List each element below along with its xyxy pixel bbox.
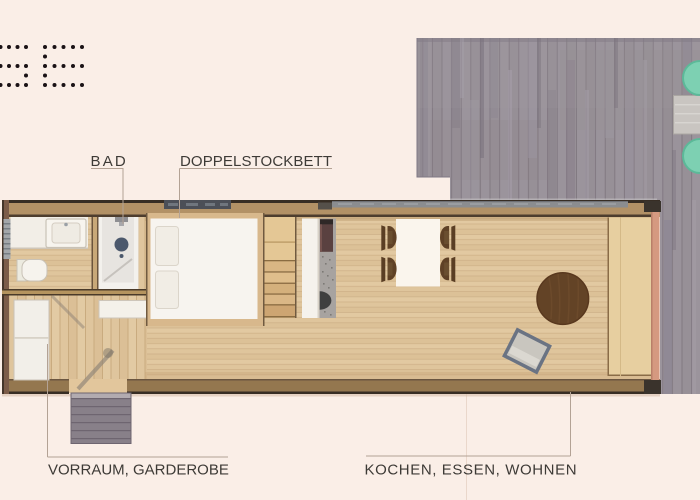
svg-text:DOPPELSTOCKBETT: DOPPELSTOCKBETT: [180, 153, 332, 170]
svg-text:BAD: BAD: [91, 153, 128, 170]
svg-text:KOCHEN, ESSEN, WOHNEN: KOCHEN, ESSEN, WOHNEN: [365, 462, 578, 479]
svg-text:VORRAUM, GARDEROBE: VORRAUM, GARDEROBE: [48, 462, 229, 479]
